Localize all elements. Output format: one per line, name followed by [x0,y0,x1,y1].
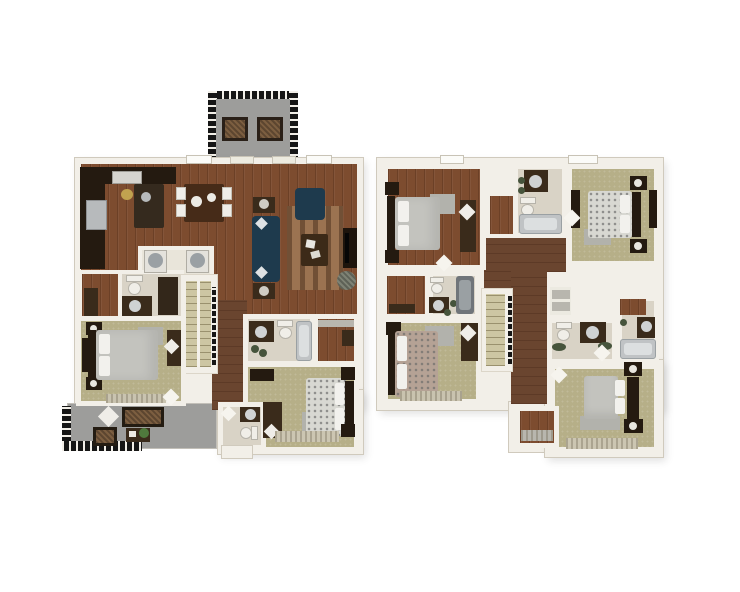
lamp [634,179,642,187]
linen-shelf [552,290,570,299]
toilet-bowl [557,329,570,341]
closet5-floor [515,406,559,448]
pillow [620,195,630,213]
floor-plan-second-floor [0,0,740,592]
sink [529,175,542,188]
linen-shelf [552,302,570,311]
pillow [398,225,409,246]
pillow [620,215,630,233]
bed-mattress [584,376,618,419]
closet-shelf [521,430,553,441]
bath-mat [552,343,566,351]
pillow [397,364,407,389]
towel [444,309,451,316]
hall-floor-upper [486,238,566,272]
sink [586,326,599,339]
closet-nook-floor [620,299,646,315]
bed-headboard [388,335,395,395]
bathtub-basin [459,280,471,310]
nightstand [385,182,399,195]
media-dresser [649,190,657,228]
towel [620,319,627,326]
sink [641,321,652,332]
pillow [615,398,625,414]
pillow [398,201,409,222]
window [440,155,464,164]
pillow [397,336,407,361]
bed-headboard [632,192,641,237]
towel [518,187,525,194]
floorplan-image [0,0,740,592]
lamp [629,365,637,373]
toilet-tank [556,322,572,329]
sink [433,300,444,311]
pillow [615,380,625,396]
window [568,155,598,164]
lamp [634,242,642,250]
toilet-bowl [431,283,443,294]
bathtub-basin [624,343,652,355]
hall-floor-patch [484,270,513,290]
bathtub-basin [524,218,557,230]
towel [518,177,525,184]
lamp [629,422,637,430]
hall-floor-lower [511,270,547,404]
stair-railing [508,294,512,366]
dresser [389,304,415,313]
woven-rug [566,438,638,449]
toilet-tank [520,197,536,204]
bed-headboard [627,377,639,419]
nightstand [385,250,399,263]
bed-headboard [387,196,395,250]
woven-rug [400,391,462,401]
